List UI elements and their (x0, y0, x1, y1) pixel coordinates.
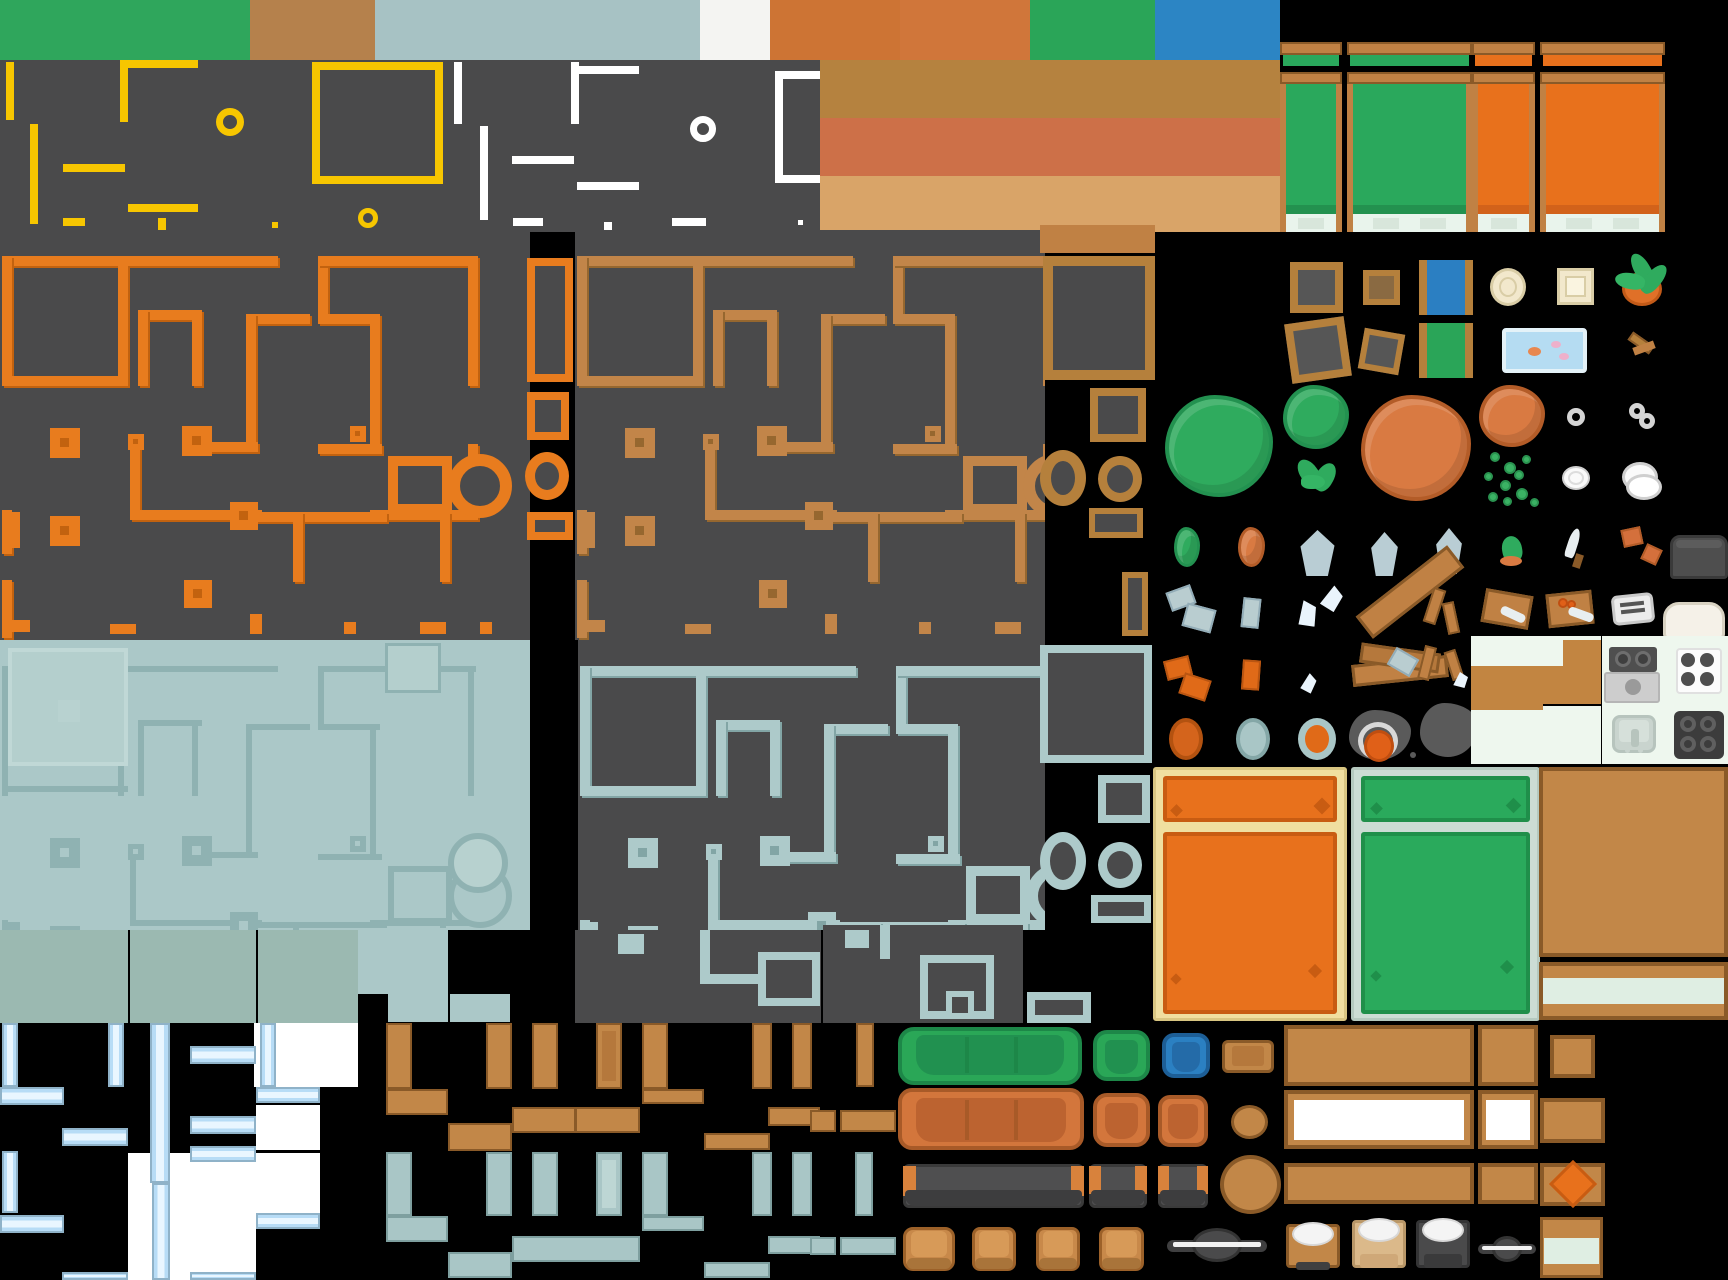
toilet-base-tan (1360, 1254, 1398, 1268)
floor-piece-bottom (388, 994, 448, 1022)
wall-set-brown-dot-square-3 (805, 502, 833, 530)
wall-set-orange-line-19 (130, 442, 140, 516)
water-tile (1155, 0, 1280, 60)
wall-set-orange-dot-2 (192, 436, 201, 445)
sink-faucet (1631, 729, 1639, 747)
wall-set-blue-dot-5 (933, 841, 938, 846)
table-wood-stripe (1543, 978, 1724, 1004)
blue-edge-frame (1091, 895, 1151, 923)
wall-set-brown-dot-4 (635, 526, 644, 535)
window-glass (190, 1116, 256, 1134)
wall-set-orange-line-12 (370, 314, 380, 386)
door-orange-wide-sill-square (1613, 218, 1639, 229)
blue-edge-frame (1098, 775, 1150, 823)
window-glass (152, 1183, 170, 1280)
shelf-wood-v (532, 1023, 558, 1089)
wall-set-brown-bit-2 (825, 614, 837, 634)
wall-set-orange-line-25 (293, 512, 303, 582)
door-orange-narrow-body-shade (1478, 205, 1529, 214)
wood-plank-wall (1040, 225, 1155, 253)
cooktop-ring (1700, 716, 1716, 732)
bolt-ring (1567, 408, 1585, 426)
stove-burner (1615, 651, 1631, 667)
wall-set-blue-dot-square-1 (706, 844, 722, 860)
wall-set-orange-dot-square-1 (128, 434, 144, 450)
plate-stack (1626, 474, 1662, 500)
toilet-lid-white (1292, 1222, 1334, 1246)
armchair-green-seat (1105, 1040, 1138, 1074)
shelf-blue-v (642, 1152, 668, 1216)
wall-set-brown-line-7 (767, 310, 777, 386)
wall-set-orange-pillar-ring (448, 454, 512, 518)
wall-set-orange-bit-5 (480, 622, 492, 634)
door-orange-narrow-lintel (1472, 72, 1535, 84)
sink-dot (1638, 748, 1643, 753)
wall-set-orange-dot-square-2 (182, 426, 212, 456)
clay-checker-tile (770, 0, 900, 60)
counter-top-line (1471, 636, 1601, 640)
wall-set-blue-line-2 (580, 786, 706, 796)
floor-set-light-dot-square-2 (182, 836, 212, 866)
window-glass (108, 1023, 124, 1087)
counter-wood-notch (1471, 704, 1543, 710)
w-line (577, 66, 639, 74)
bush-green-big (1165, 395, 1273, 497)
counter-corner-white (1471, 640, 1563, 666)
door-orange-narrow-jamb (1529, 84, 1535, 232)
rug-green-bar (1465, 323, 1473, 378)
wood-frame-tall (1122, 572, 1148, 636)
wall-set-orange-line-1 (2, 256, 12, 386)
floor-set-light-line-14 (468, 666, 474, 796)
shelf-blue-v (486, 1152, 512, 1216)
shelf-blue-h (448, 1252, 512, 1278)
wall-set-orange-dot-square-3 (230, 502, 258, 530)
shelf-wood-v (792, 1023, 812, 1089)
y-line (128, 60, 198, 68)
floor-set-light-line-25 (293, 922, 299, 930)
wall-set-orange-dot-square-6 (184, 580, 212, 608)
couch-orange-seat (916, 1098, 1066, 1142)
picture-frame-tilted (1284, 316, 1352, 384)
cooktop-ring (1680, 736, 1696, 752)
wall-set-brown-line-17 (821, 380, 831, 448)
blue-seg (880, 925, 890, 959)
wall-set-brown-dot-0 (635, 438, 644, 447)
floor-set-light-dot-3 (239, 921, 247, 929)
sink-glint (1482, 1246, 1532, 1250)
floor-set-light-dot-0 (60, 848, 69, 857)
door-green-narrow-jamb (1336, 84, 1342, 232)
wall-set-blue-line-9 (824, 724, 834, 796)
wall-set-orange-line-7 (192, 310, 202, 386)
wall-set-brown-dot-square-6 (759, 580, 787, 608)
floor3-tile (0, 930, 128, 1023)
wall-set-brown-line-12 (945, 314, 955, 386)
window-white-tile (256, 1153, 320, 1215)
rug-blue-bar (1465, 260, 1473, 315)
pea (1514, 470, 1524, 480)
couch-green-seam (1014, 1037, 1018, 1073)
wall-set-orange-bit-0 (8, 620, 30, 632)
bush-green-medium (1283, 385, 1349, 449)
bush-orange-medium (1479, 385, 1545, 447)
shelf-wood-inner (602, 1031, 616, 1081)
door-orange-wide-top-strip (1543, 55, 1662, 66)
window-glass (256, 1213, 320, 1229)
shelf-wood-h (448, 1123, 512, 1151)
window-glass (62, 1272, 128, 1280)
armchair-orange-seat (1168, 1104, 1198, 1139)
plate-oval-inner (1499, 277, 1517, 297)
wall-set-orange-pillar-square (388, 456, 452, 514)
wall-set-blue-line-6 (716, 720, 726, 796)
range-burner (1700, 672, 1714, 686)
plank-floor-tan (820, 176, 1280, 232)
range-burner (1700, 653, 1714, 667)
picture-frame (1290, 262, 1343, 313)
shelf-wood-h (704, 1133, 770, 1150)
wall-set-orange-dot-square-5 (350, 426, 366, 442)
door-orange-wide-sill (1546, 214, 1659, 232)
wall-set-blue-bit-6 (586, 922, 598, 930)
pea (1522, 455, 1531, 464)
window-glass (150, 1023, 170, 1183)
w-dash (672, 218, 706, 226)
chair-tan-seat (1043, 1231, 1073, 1257)
wall-set-brown-line-2 (577, 376, 703, 386)
bread-loaf (1663, 602, 1725, 640)
y-circle (358, 208, 378, 228)
table-orange-top (1163, 776, 1337, 822)
blue-edge-ring (1040, 832, 1086, 890)
shelf-blue-flange (386, 1216, 448, 1242)
paper-scrap (1181, 603, 1216, 634)
floor-set-light-line-17 (246, 790, 252, 858)
window-glass (190, 1046, 256, 1064)
w-dash (577, 182, 639, 190)
floor-set-light-dot-square-5 (350, 836, 366, 852)
door-orange-narrow-top-strip (1475, 55, 1532, 66)
toilet-base-dark (1424, 1254, 1462, 1268)
wall-set-brown-dot-3 (814, 511, 822, 519)
range-burner (1681, 672, 1695, 686)
wall-set-brown-line-1 (577, 256, 587, 386)
wood-stick (1442, 601, 1460, 635)
wood-square (1540, 1098, 1605, 1143)
wall-set-brown-line-9 (821, 314, 831, 386)
shelf-blue-h (704, 1262, 770, 1278)
tileset-atlas-canvas (0, 0, 1728, 1280)
couch-gray-base (905, 1190, 1082, 1206)
aquarium-fish-orange (1528, 347, 1541, 356)
door-green-wide-sill (1353, 214, 1466, 232)
door-orange-narrow-sill-square (1491, 218, 1517, 229)
shelf-wood-flange (386, 1089, 448, 1115)
door-green-wide-sill-square (1420, 218, 1446, 229)
rock (1299, 530, 1336, 576)
wall-set-brown-bit-0 (583, 620, 605, 632)
floor3-tile (130, 930, 256, 1023)
door-green-wide-top-strip (1350, 55, 1469, 66)
shelf-wood-h (840, 1110, 896, 1132)
blue-seg (700, 930, 710, 978)
wall-set-orange-line-0 (2, 256, 128, 266)
door-green-wide-body (1353, 84, 1466, 205)
ice-shard (1298, 672, 1317, 694)
wall-set-brown-pillar-square (963, 456, 1027, 514)
wall-set-brown-dot-6 (768, 589, 776, 597)
sink-glint (1173, 1242, 1261, 1247)
wood-frame (1089, 508, 1143, 538)
shelf-wood-v (752, 1023, 772, 1089)
floor-set-light-line-7 (192, 720, 198, 796)
wall-set-orange-line-3 (118, 256, 128, 386)
door-green-narrow-top-lintel (1280, 42, 1342, 55)
stove-burner (1635, 651, 1651, 667)
door-green-narrow-body (1286, 84, 1336, 205)
door-orange-narrow-body (1478, 84, 1529, 205)
wall-set-orange-dot-3 (239, 511, 247, 519)
floor-set-light-dot-5 (355, 841, 360, 846)
shelf-blue-h (512, 1236, 640, 1262)
shelf-blue-v (792, 1152, 812, 1216)
toilet-lid-white (1358, 1218, 1400, 1242)
cabinet-stripe-mint (1544, 1238, 1599, 1264)
pea (1484, 472, 1493, 481)
shelf-wood-h (810, 1110, 836, 1132)
plank-floor-red (820, 118, 1280, 176)
splat-dark (1420, 703, 1478, 757)
wall-set-brown-dot-2 (767, 436, 776, 445)
table-wood-upper (1539, 767, 1728, 957)
wall-set-brown-line-6 (713, 310, 723, 386)
floor-set-light-dot-1 (133, 849, 138, 854)
shelf-wood-v (486, 1023, 512, 1089)
floor-tile-piece (385, 643, 441, 693)
floor-set-light-line-8 (246, 724, 310, 730)
rug-blue-bar (1419, 260, 1427, 315)
wall-set-orange-dot-6 (193, 589, 201, 597)
oval-gray (1236, 718, 1270, 760)
wall-set-brown (575, 230, 1045, 640)
blue-edge-frame-big (1040, 645, 1152, 763)
door-green-wide-body-shade (1353, 205, 1466, 214)
wall-set-brown-bit-1 (685, 624, 711, 634)
door-orange-wide-body-shade (1546, 205, 1659, 214)
pea (1530, 498, 1539, 507)
wall-set-brown-line-26 (1015, 512, 1025, 582)
wall-set-orange-line-24 (252, 512, 387, 522)
door-green-wide-sill-square (1373, 218, 1399, 229)
door-green-narrow-lintel (1280, 72, 1342, 84)
y-dot (272, 222, 278, 228)
wall-set-blue-dot-0 (638, 848, 647, 857)
wood-square (1550, 1035, 1595, 1078)
table-orange-body (1163, 832, 1337, 1014)
window-white-tile (256, 1105, 320, 1150)
wall-set-brown-dot-square-5 (925, 426, 941, 442)
couch-green-seat (916, 1035, 1064, 1075)
wall-set-orange-line-2 (2, 376, 128, 386)
blue-bit (618, 934, 644, 954)
orange-scrap (1241, 659, 1261, 690)
range-burner (1681, 653, 1695, 667)
pea (1516, 488, 1528, 500)
floor-set-light-pillar-square (388, 866, 452, 924)
armchair-blue-seat (1172, 1042, 1200, 1072)
chair-tan-lip (975, 1258, 1013, 1269)
shelf-blue-h (810, 1237, 836, 1255)
wall-set-brown-line-15 (945, 380, 955, 450)
nightstand-inner (1232, 1046, 1264, 1066)
w-circle (690, 116, 716, 142)
wall-set-blue-line-1 (580, 666, 590, 796)
pea (1500, 480, 1511, 491)
door-orange-wide-sill-square (1566, 218, 1592, 229)
door-green-narrow-sill (1286, 214, 1336, 232)
wall-set-blue-line-13 (896, 666, 1045, 676)
wall-set-brown-bit-3 (919, 622, 931, 634)
wall-set-orange-dot-1 (133, 439, 138, 444)
chair-tan-lip (1039, 1258, 1077, 1269)
aquarium (1502, 328, 1587, 373)
wood-ring-pillar (1040, 450, 1086, 506)
shelf-wood-v (856, 1023, 874, 1087)
wall-set-blue-line-15 (948, 790, 958, 860)
window-white-tile (320, 1023, 358, 1087)
window-glass (190, 1272, 256, 1280)
toilet-base-dark (1296, 1262, 1330, 1270)
chair-tan-seat (1106, 1231, 1137, 1257)
door-orange-narrow-sill (1478, 214, 1529, 232)
floor-set-light-line-15 (370, 790, 376, 860)
wood-blackboard (1043, 256, 1155, 380)
shelf-wood-v (642, 1023, 668, 1089)
window-glass (256, 1087, 320, 1103)
door-orange-wide-lintel (1540, 72, 1665, 84)
wall-set-blue-dot-1 (711, 849, 716, 854)
armchair-gray-base (1160, 1190, 1206, 1206)
floor-set-light-dot-square-3 (230, 912, 258, 930)
table-green-body (1361, 832, 1530, 1014)
stool-wood (1231, 1105, 1268, 1139)
wall-set-brown-dot-square-4 (625, 516, 655, 546)
wall-set-blue-line-7 (770, 720, 780, 796)
road-markings-sheet (0, 60, 820, 232)
shelf-blue-v (855, 1152, 873, 1216)
orange-scrap (1178, 672, 1211, 702)
wall-set-brown-dot-square-2 (757, 426, 787, 456)
wall-set-blue-line-0 (580, 666, 706, 676)
couch-orange-seam (965, 1100, 969, 1140)
rock (1370, 532, 1399, 576)
wall-set-orange-dot-square-4 (50, 516, 80, 546)
seedling-base (1500, 556, 1522, 566)
bed-wood (1284, 1025, 1474, 1086)
egg-yolk (1364, 730, 1394, 762)
floor-set-light-line-16 (318, 854, 382, 860)
chair-tan-seat (979, 1231, 1009, 1257)
wall-set-orange-bit-2 (250, 614, 262, 634)
door-green-narrow-top-strip (1283, 55, 1339, 66)
pea (1490, 452, 1500, 462)
shelf-blue-v (752, 1152, 772, 1216)
cooktop-ring (1700, 736, 1716, 752)
green-tile (1030, 0, 1155, 60)
y-dash (128, 204, 198, 212)
bed-sheet-white (1486, 1100, 1530, 1140)
wall-set-orange-line-14 (468, 256, 478, 386)
pea (1503, 497, 1512, 506)
wall-set-orange-bit-1 (110, 624, 136, 634)
ice-shard (1293, 598, 1320, 629)
shelf-blue-flange (642, 1216, 704, 1231)
wall-set-orange-bit-3 (344, 622, 356, 634)
blue-seg (700, 974, 760, 984)
floor-set-light-line-12 (370, 724, 376, 796)
wall-set-brown-line-19 (705, 442, 715, 516)
wall-set-orange-line-17 (246, 380, 256, 448)
picture-frame-tilted-small (1358, 328, 1405, 375)
cooktop-ring (1680, 716, 1696, 732)
window-glass (0, 1087, 64, 1105)
paper-scrap (1240, 597, 1261, 629)
wall-set-blue-line-3 (696, 666, 706, 796)
floor-pillar-circle (448, 833, 508, 893)
wall-set-orange-dot-0 (60, 438, 69, 447)
w-dash (512, 156, 574, 164)
wall-set-blue-line-12 (948, 724, 958, 796)
chair-tan-lip (1102, 1258, 1141, 1269)
wall-set-orange-line-13 (318, 256, 476, 266)
floor-set-light-bit-6 (8, 922, 20, 930)
white-checker-tile (700, 0, 770, 60)
wall-set-blue-pillar-square (966, 866, 1030, 924)
floor-set-light-dot-2 (192, 846, 201, 855)
window-glass (0, 1215, 64, 1233)
wood-frame (1090, 388, 1146, 442)
w-line (454, 62, 462, 124)
door-green-narrow-body-shade (1286, 205, 1336, 214)
wall-set-brown-dot-1 (708, 439, 713, 444)
aquarium-fish-pink (1559, 353, 1569, 360)
wall-set-orange-dot-4 (60, 526, 69, 535)
wall-set-brown-line-13 (893, 256, 1045, 266)
wall-set-blue-line-19 (708, 852, 718, 926)
wall-set-orange (0, 230, 530, 640)
bush-orange-big (1361, 395, 1471, 501)
plank-floor-brown (820, 60, 1280, 118)
door-green-wide-lintel (1347, 72, 1472, 84)
floor-inlay-center (58, 700, 80, 722)
table-green-top (1361, 776, 1530, 822)
aquarium-fish-pink (1551, 341, 1561, 348)
wall-set-orange-line-6 (138, 310, 148, 386)
stone-tile (375, 0, 700, 60)
wall-set-brown-line-4 (703, 256, 853, 266)
w-dot (798, 220, 803, 225)
floor-set-light-dot-square-1 (128, 844, 144, 860)
window-white-tile (128, 1153, 256, 1280)
blue-frame-inner (946, 991, 974, 1019)
window-glass (190, 1146, 256, 1162)
plate-white-inner (1568, 471, 1584, 485)
y-line (120, 60, 128, 122)
bed-plain (1284, 1163, 1474, 1204)
wall-set-blue (578, 640, 1045, 930)
shelf-wood-flange (642, 1089, 704, 1104)
